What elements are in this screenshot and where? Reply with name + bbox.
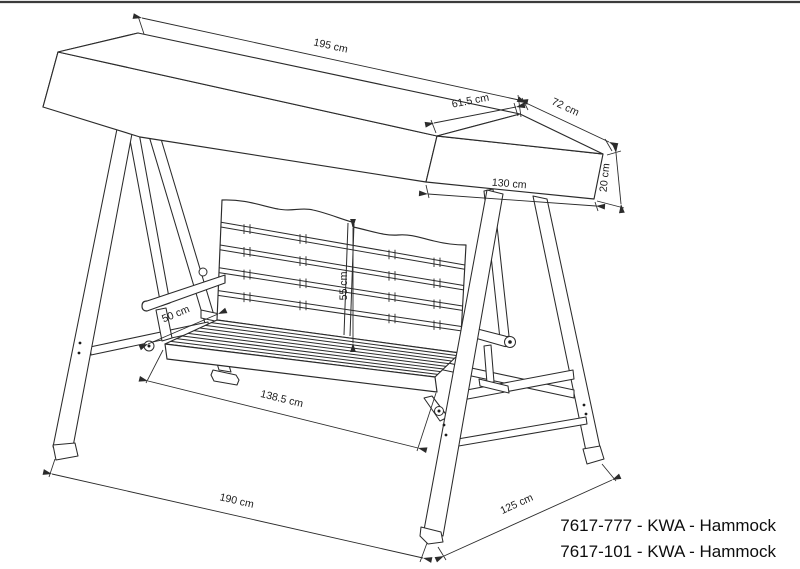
dimension-frame-width: 190 cm: [49, 459, 427, 562]
canopy: [43, 33, 603, 199]
backrest-height-label: 55 cm: [338, 271, 350, 300]
frame-depth-label: 125 cm: [498, 492, 535, 517]
product-code-line-1: 7617-777 - KWA - Hammock: [560, 516, 776, 535]
right-lower-brace: [446, 417, 587, 448]
hammock-technical-drawing-page: 195 cm 61.5 cm 72 cm 130 cm 20 cm 55 cm …: [0, 0, 800, 569]
front-left-foot: [53, 443, 78, 460]
canopy-hip-edge-label: 72 cm: [550, 96, 581, 119]
rear-right-foot: [583, 446, 604, 464]
left-rear-bolt: [199, 268, 207, 276]
front-left-leg: [53, 119, 134, 460]
seat-width-label: 138.5 cm: [259, 388, 304, 410]
rear-left-foot: [211, 370, 239, 385]
canopy-height-label: 20 cm: [598, 163, 613, 193]
hammock-technical-drawing: 195 cm 61.5 cm 72 cm 130 cm 20 cm 55 cm …: [0, 0, 800, 569]
seat-depth-label: 50 cm: [160, 303, 191, 325]
canopy-length-label: 195 cm: [312, 36, 349, 55]
frame-width-label: 190 cm: [218, 491, 255, 510]
product-code-line-2: 7617-101 - KWA - Hammock: [560, 542, 776, 561]
